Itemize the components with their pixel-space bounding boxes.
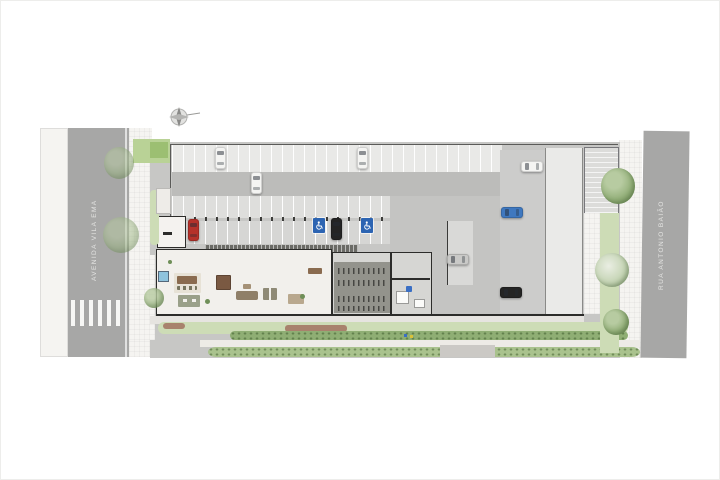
garden-marker-blue (404, 334, 407, 337)
square-table (216, 275, 231, 290)
tree (144, 288, 164, 308)
accessible-parking-stall (361, 218, 373, 233)
coffee-table (243, 284, 251, 289)
lounge-chairs (178, 295, 200, 307)
core-wall (390, 252, 392, 316)
hedge-row (230, 331, 628, 340)
crosswalk (71, 300, 124, 326)
water-feature (158, 271, 169, 282)
bike-rack (338, 268, 386, 274)
storage-closet (396, 291, 409, 304)
street-label-left: AVENIDA VILA EMA (91, 185, 103, 295)
wheelchair-icon (315, 221, 324, 230)
parking-stalls-middle-row (172, 196, 390, 218)
parking-column-b (545, 148, 583, 315)
bike-rack (338, 306, 386, 311)
desk (308, 268, 322, 274)
plant-pot (205, 299, 210, 304)
lawn-patch-dark (150, 142, 168, 158)
garden-marker-yellow (410, 335, 413, 338)
flower-hedge (163, 323, 185, 329)
bench (163, 232, 172, 235)
core-wall (392, 278, 430, 280)
small-stall-column (447, 221, 473, 285)
bike-rack (338, 296, 386, 302)
outer-hedge (208, 347, 640, 357)
entry-canopy (156, 188, 171, 214)
garden-walkway (200, 340, 640, 347)
tree (603, 309, 629, 335)
tree (595, 253, 629, 287)
sofa (236, 291, 258, 300)
site-plan: AVENIDA VILA EMA RUA ANTONIO BAIÃO (0, 0, 720, 480)
storage-closet (414, 299, 425, 308)
elevator-sign-icon (406, 286, 412, 292)
accessible-parking-stall (313, 218, 325, 233)
plant-pot (300, 294, 305, 299)
sidewalk-left-outer (40, 128, 68, 357)
bike-rack (338, 280, 386, 286)
tree (601, 168, 635, 204)
wheelchair-icon (363, 221, 372, 230)
plant-pot (168, 260, 172, 264)
armchairs (263, 288, 277, 300)
parking-stalls-lower-row (172, 221, 390, 244)
gravel-path (440, 345, 495, 357)
street-label-right: RUA ANTONIO BAIÃO (658, 190, 670, 300)
tree (104, 147, 134, 179)
dining-table (177, 276, 197, 284)
drive-aisle (172, 172, 502, 196)
parking-stalls-top-row (172, 145, 502, 172)
tree (103, 217, 139, 253)
north-arrow-icon (166, 104, 206, 130)
chair-row (177, 286, 197, 290)
parking-column-a (500, 150, 545, 313)
